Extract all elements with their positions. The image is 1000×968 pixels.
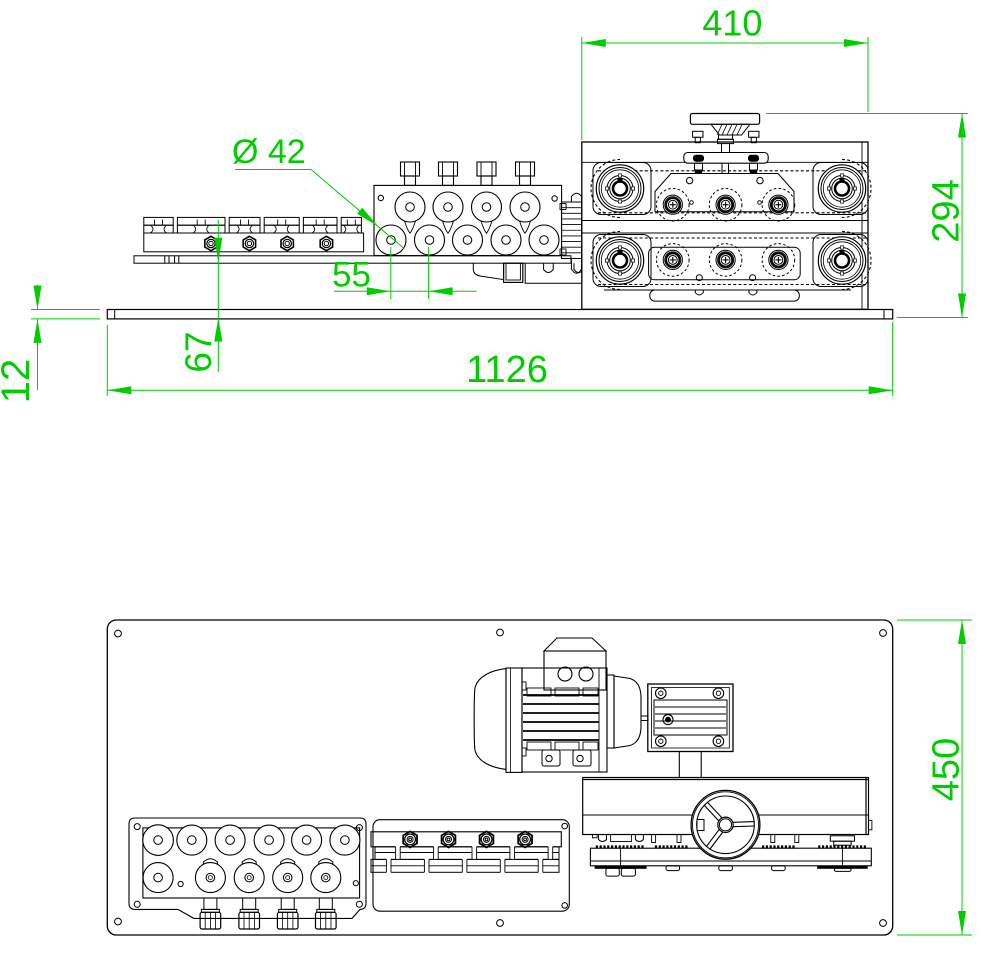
svg-text:67: 67 [178, 331, 219, 372]
svg-text:55: 55 [332, 256, 371, 295]
svg-text:1126: 1126 [466, 349, 548, 391]
svg-text:410: 410 [702, 3, 762, 44]
svg-text:294: 294 [926, 179, 968, 242]
svg-text:12: 12 [0, 359, 38, 404]
svg-text:450: 450 [926, 738, 968, 801]
svg-text:Ø 42: Ø 42 [232, 133, 306, 171]
